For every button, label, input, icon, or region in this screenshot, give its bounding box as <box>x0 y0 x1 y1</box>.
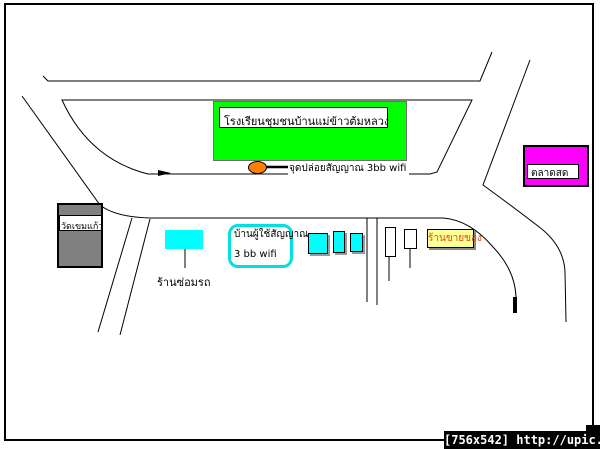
school-label: โรงเรียนชุมชนบ้านแม่ข้าวต้มหลวง <box>219 107 388 128</box>
house-marker <box>333 231 345 253</box>
sign-marker <box>385 227 396 257</box>
house-marker <box>308 233 328 254</box>
street-arrow-tick <box>158 170 171 176</box>
temple-label: วัดเขมแก้ว <box>59 215 102 231</box>
road-side-diagonal-right-edge <box>120 219 150 335</box>
repair-shop-label: ร้านซ่อมรถ <box>157 277 211 289</box>
map-canvas: โรงเรียนชุมชนบ้านแม่ข้าวต้มหลวง ตลาดสด ว… <box>0 0 600 449</box>
temple-building <box>57 203 103 268</box>
road-right-outer-edge <box>483 60 566 322</box>
road-side-diagonal-left-edge <box>98 218 132 332</box>
goods-shop-label: ร้านขายของ <box>427 229 474 248</box>
wifi-point-label: จุดปล่อยสัญญาณ 3bb wifi <box>288 162 409 178</box>
wifi-user-house-label-line2: 3 bb wifi <box>234 249 277 260</box>
watermark-text: [756x542] http://upic.me/ <box>444 431 600 449</box>
house-marker <box>350 233 363 252</box>
market-label: ตลาดสด <box>527 164 579 179</box>
wifi-point-marker <box>248 161 267 174</box>
repair-shop-marker <box>165 230 203 249</box>
sign-marker <box>404 229 417 249</box>
road-top-upper-edge <box>43 52 492 81</box>
wifi-user-house-label-line1: บ้านผู้ใช้สัญญาณ <box>234 229 308 240</box>
